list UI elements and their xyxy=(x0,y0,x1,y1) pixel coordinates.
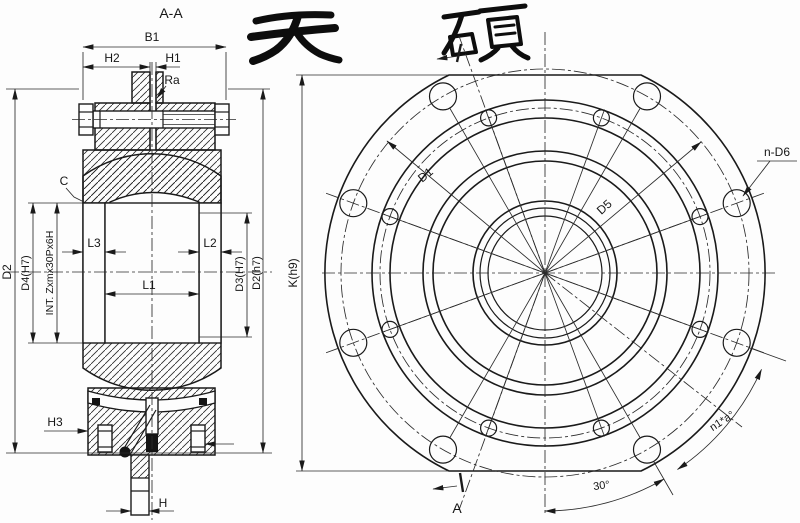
dim-h: H xyxy=(159,496,168,510)
dim-l3: L3 xyxy=(87,236,101,250)
front-view: K(h9) D1 D5 n-D6 n1*a° 30° xyxy=(286,32,797,516)
label-30deg: 30° xyxy=(593,479,611,493)
dim-h1: H1 xyxy=(165,51,181,65)
blueprint-page: D2 D4(H7) INT. Zxmx30Px6H D3(H7) D2(h7) … xyxy=(0,0,800,523)
sleeve-wall-right xyxy=(199,203,221,343)
section-arrow-bottom: A xyxy=(433,473,463,516)
engineering-drawing: D2 D4(H7) INT. Zxmx30Px6H D3(H7) D2(h7) … xyxy=(0,0,800,523)
dim-d2-shaft: D2(h7) xyxy=(251,256,263,290)
brand-calligraphy xyxy=(251,6,528,61)
seal-strip-right xyxy=(199,398,207,405)
nd6-callout: n-D6 xyxy=(743,145,797,196)
label-c: C xyxy=(60,174,69,188)
angle-30-dimension: 30° xyxy=(545,479,664,511)
dim-h3: H3 xyxy=(47,415,63,429)
section-title: A-A xyxy=(159,5,183,21)
brand-char-tian-icon xyxy=(251,15,339,61)
clamp-bolt-hole-right xyxy=(191,425,205,452)
label-ra: Ra xyxy=(164,73,180,87)
dim-int-thread: INT. Zxmx30Px6H xyxy=(44,231,56,316)
dim-d3-bore: D3(H7) xyxy=(234,256,246,291)
dim-h2: H2 xyxy=(104,51,120,65)
pinch-lug-left xyxy=(132,72,150,103)
dim-d5: D5 xyxy=(594,196,615,217)
label-section-a: A xyxy=(452,500,462,516)
brand-char-shuo-icon xyxy=(444,6,528,60)
diagonal-centerline xyxy=(545,273,742,427)
hole-pitch-dimension: n1*a° xyxy=(654,348,786,495)
dim-k: K(h9) xyxy=(286,258,300,287)
dim-l1: L1 xyxy=(142,278,156,292)
seal-strip-left xyxy=(92,398,100,405)
sleeve-wall-left xyxy=(83,203,105,343)
section-view: D2 D4(H7) INT. Zxmx30Px6H D3(H7) D2(h7) … xyxy=(0,5,272,520)
dim-b1: B1 xyxy=(145,30,160,44)
pinch-lug-right xyxy=(156,72,163,103)
clamp-bolt-hole-left xyxy=(98,425,112,452)
dim-l2: L2 xyxy=(203,236,217,250)
dim-d2-outer: D2 xyxy=(0,264,14,280)
label-nd6: n-D6 xyxy=(764,145,790,159)
dim-d4-bore: D4(H7) xyxy=(20,255,32,290)
